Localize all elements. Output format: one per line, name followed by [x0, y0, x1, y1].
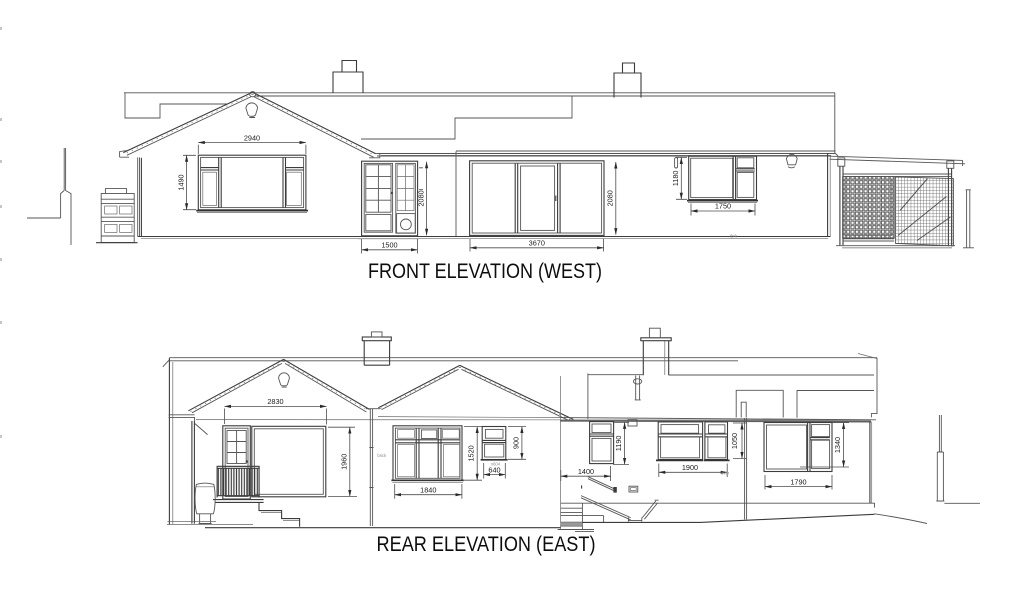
svg-text:REAR ELEVATION (EAST): REAR ELEVATION (EAST): [377, 532, 596, 556]
svg-text:2080: 2080: [416, 190, 425, 206]
svg-text:1400: 1400: [578, 467, 594, 476]
svg-text:1500: 1500: [381, 240, 397, 249]
svg-text:1490: 1490: [176, 174, 185, 190]
svg-text:over: over: [721, 470, 730, 475]
svg-text:1520: 1520: [467, 445, 476, 461]
svg-text:1190: 1190: [614, 436, 623, 452]
svg-text:1750: 1750: [715, 202, 731, 211]
svg-text:640: 640: [488, 465, 500, 474]
svg-text:1840: 1840: [420, 485, 436, 494]
svg-text:1340: 1340: [833, 437, 842, 453]
svg-text:1790: 1790: [790, 477, 806, 486]
svg-text:1180: 1180: [671, 171, 680, 187]
svg-text:2940: 2940: [244, 133, 260, 142]
svg-text:1050: 1050: [730, 433, 739, 449]
svg-text:tbrk: tbrk: [730, 233, 738, 238]
svg-text:1960: 1960: [339, 454, 348, 470]
svg-text:FRONT ELEVATION (WEST): FRONT ELEVATION (WEST): [368, 259, 602, 283]
svg-text:2830: 2830: [267, 397, 283, 406]
svg-text:3670: 3670: [529, 238, 545, 247]
svg-text:900: 900: [511, 437, 520, 449]
svg-text:2080: 2080: [606, 190, 615, 206]
svg-text:brick: brick: [377, 453, 387, 458]
svg-text:1900: 1900: [682, 463, 698, 472]
